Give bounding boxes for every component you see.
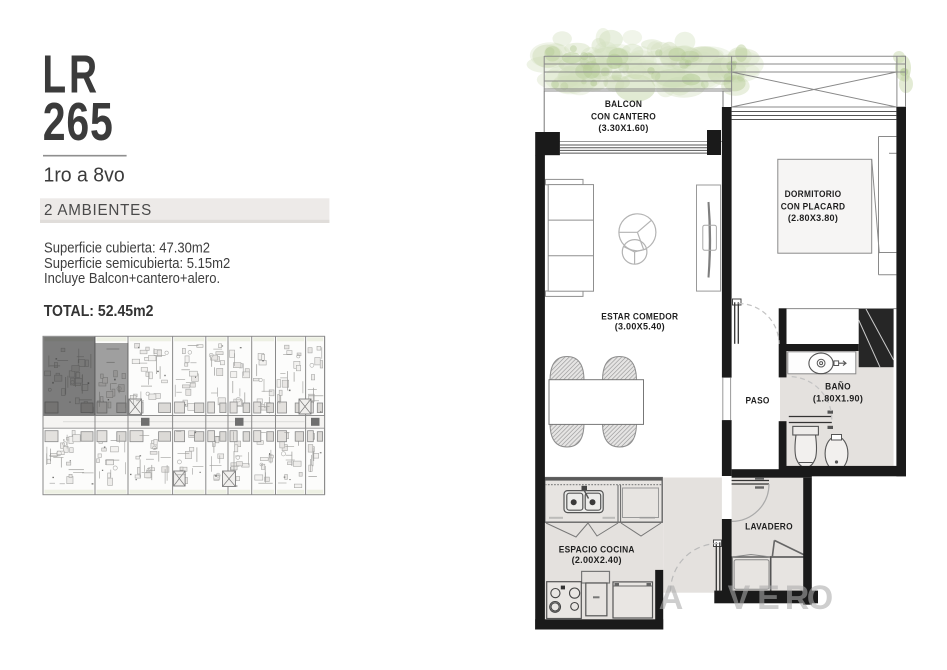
svg-text:265: 265 bbox=[43, 93, 114, 153]
svg-text:PASO: PASO bbox=[746, 395, 770, 406]
svg-text:ESTAR COMEDOR: ESTAR COMEDOR bbox=[601, 311, 678, 322]
svg-text:DORMITORIO: DORMITORIO bbox=[785, 189, 842, 200]
svg-text:(2.00X2.40): (2.00X2.40) bbox=[572, 555, 622, 565]
svg-text:E: E bbox=[757, 579, 780, 617]
svg-text:O: O bbox=[807, 579, 833, 617]
svg-text:TOTAL: 52.45m2: TOTAL: 52.45m2 bbox=[44, 302, 154, 320]
svg-text:R: R bbox=[785, 579, 810, 617]
svg-text:(3.30X1.60): (3.30X1.60) bbox=[598, 123, 648, 133]
svg-text:(2.80X3.80): (2.80X3.80) bbox=[788, 213, 838, 223]
svg-text:2 AMBIENTES: 2 AMBIENTES bbox=[44, 202, 152, 219]
svg-text:(3.00X5.40): (3.00X5.40) bbox=[615, 321, 665, 331]
svg-text:Incluye Balcon+cantero+alero.: Incluye Balcon+cantero+alero. bbox=[44, 269, 220, 286]
svg-text:(1.80X1.90): (1.80X1.90) bbox=[813, 393, 863, 403]
svg-text:ESPACIO COCINA: ESPACIO COCINA bbox=[559, 544, 635, 555]
svg-text:LAVADERO: LAVADERO bbox=[745, 521, 793, 532]
svg-text:CON PLACARD: CON PLACARD bbox=[781, 201, 846, 212]
svg-text:V: V bbox=[728, 579, 751, 617]
svg-text:CON CANTERO: CON CANTERO bbox=[591, 111, 656, 122]
svg-text:BAÑO: BAÑO bbox=[825, 381, 851, 392]
svg-text:BALCON: BALCON bbox=[605, 99, 642, 110]
svg-text:1ro a 8vo: 1ro a 8vo bbox=[44, 164, 125, 187]
svg-text:A: A bbox=[659, 579, 684, 617]
